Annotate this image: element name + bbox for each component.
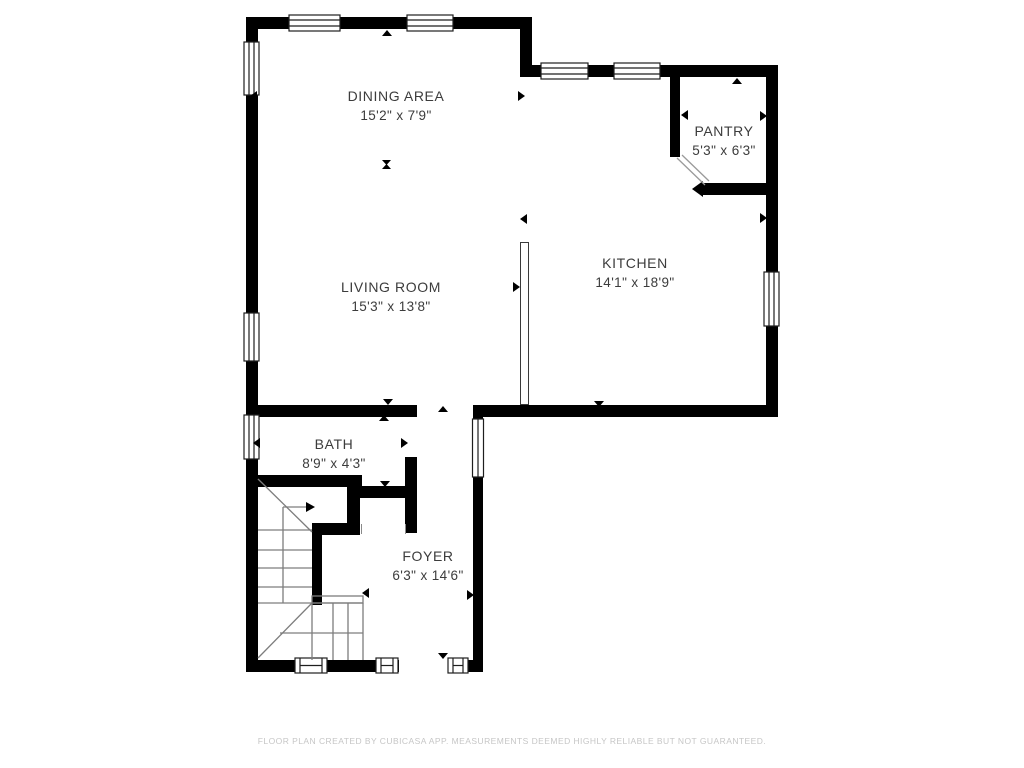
marker-up-icon xyxy=(732,78,742,84)
room-name: KITCHEN xyxy=(595,253,674,273)
floor-plan-drawing xyxy=(0,0,1024,768)
marker-right-icon xyxy=(467,590,474,600)
room-label-pantry: PANTRY 5'3" x 6'3" xyxy=(692,121,755,161)
wall-pantry-left xyxy=(670,77,680,157)
window-right-kitchen xyxy=(764,272,779,326)
vestibule-opening xyxy=(362,524,406,534)
floor-plan: DINING AREA 15'2" x 7'9" PANTRY 5'3" x 6… xyxy=(0,0,1024,768)
marker-right-icon xyxy=(760,111,767,121)
room-label-bath: BATH 8'9" x 4'3" xyxy=(302,434,365,474)
window-left-bath xyxy=(244,415,259,459)
bowtie-marker-icon xyxy=(382,160,391,169)
marker-down-icon xyxy=(383,399,393,405)
wall-right xyxy=(766,65,778,417)
wall-stair-right xyxy=(312,530,322,605)
room-dimensions: 6'3" x 14'6" xyxy=(392,566,463,586)
marker-right-icon xyxy=(513,282,520,292)
walls xyxy=(246,17,778,672)
window-entry-sidelight xyxy=(448,658,468,673)
room-name: PANTRY xyxy=(692,121,755,141)
disclaimer-text: FLOOR PLAN CREATED BY CUBICASA APP. MEAS… xyxy=(0,736,1024,746)
room-label-foyer: FOYER 6'3" x 14'6" xyxy=(392,546,463,586)
window-kitchen-top-1 xyxy=(541,63,588,79)
room-label-dining: DINING AREA 15'2" x 7'9" xyxy=(348,86,445,126)
marker-right-icon xyxy=(518,91,525,101)
kitchen-partition-wall xyxy=(521,243,529,405)
window-kitchen-top-2 xyxy=(614,63,660,79)
room-dimensions: 8'9" x 4'3" xyxy=(302,454,365,474)
windows xyxy=(244,15,779,673)
room-dimensions: 15'2" x 7'9" xyxy=(348,106,445,126)
window-dining-top-1 xyxy=(289,15,340,31)
pantry-door-jamb-arrow-icon xyxy=(692,181,703,197)
window-left-dining xyxy=(244,42,259,95)
room-dimensions: 5'3" x 6'3" xyxy=(692,141,755,161)
marker-up-icon xyxy=(382,30,392,36)
room-dimensions: 14'1" x 18'9" xyxy=(595,273,674,293)
marker-left-icon xyxy=(681,110,688,120)
wall-kitchen-bottom xyxy=(473,405,778,417)
marker-right-icon xyxy=(760,213,767,223)
front-door-opening xyxy=(399,658,449,674)
window-dining-top-2 xyxy=(407,15,453,31)
room-dimensions: 15'3" x 13'8" xyxy=(341,297,441,317)
window-bottom-1 xyxy=(295,658,327,673)
marker-right-icon xyxy=(401,438,408,448)
marker-left-icon xyxy=(520,214,527,224)
wall-vestibule-top xyxy=(360,486,417,498)
room-name: LIVING ROOM xyxy=(341,277,441,297)
wall-bath-top xyxy=(246,405,417,417)
window-foyer-right xyxy=(473,419,484,477)
window-bottom-2 xyxy=(376,658,398,673)
marker-up-icon xyxy=(438,406,448,412)
window-left-living xyxy=(244,313,259,361)
room-name: BATH xyxy=(302,434,365,454)
room-label-living-room: LIVING ROOM 15'3" x 13'8" xyxy=(341,277,441,317)
stairs-up-arrow-icon xyxy=(306,502,315,512)
room-label-kitchen: KITCHEN 14'1" x 18'9" xyxy=(595,253,674,293)
room-name: FOYER xyxy=(392,546,463,566)
opening-markers xyxy=(250,30,767,659)
room-name: DINING AREA xyxy=(348,86,445,106)
